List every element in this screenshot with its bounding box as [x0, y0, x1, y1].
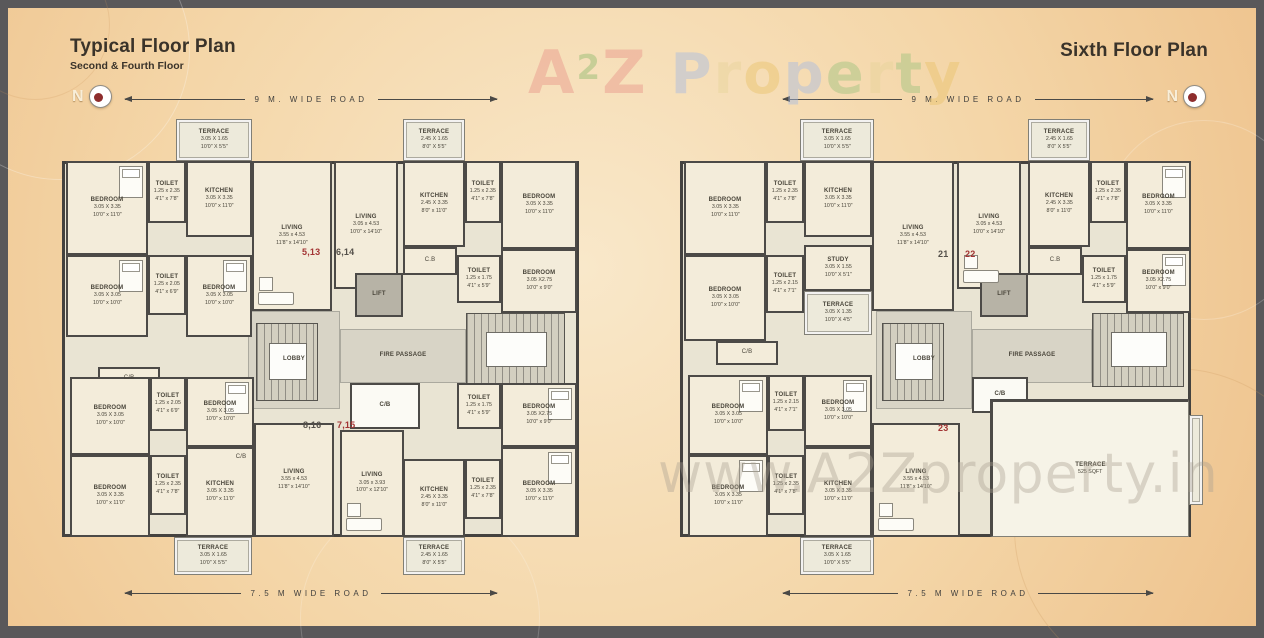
room-study: STUDY3.05 X 1.5510'0" X 5'1"	[804, 245, 872, 291]
room-bedroom: BEDROOM3.05 X 3.3510'0" x 11'0"	[688, 455, 768, 537]
unit-number: 8,16	[303, 421, 321, 430]
room-toilet: TOILET1.25 x 2.054'1" x 6'9"	[148, 255, 186, 315]
room-bedroom: BEDROOM3.05 X 3.3510'0" x 11'0"	[1126, 161, 1191, 249]
room-fire-passage: FIRE PASSAGE	[972, 329, 1092, 383]
left-plan-subtitle: Second & Fourth Floor	[70, 60, 236, 72]
room-kitchen: KITCHEN3.05 X 3.3510'0" x 11'0"	[186, 161, 252, 237]
watermark-letter: A	[528, 38, 576, 108]
road-text: 7.5 M WIDE ROAD	[898, 589, 1039, 598]
watermark-letter: P	[671, 42, 714, 107]
road-text: 9 M. WIDE ROAD	[902, 95, 1035, 104]
arrow-line-left	[125, 99, 245, 100]
unit-number: 7,15	[337, 421, 355, 430]
room-terrace: TERRACE3.05 X 1.6510'0" X 5'5"	[800, 537, 874, 575]
sofa-icon	[346, 518, 382, 531]
room-toilet: TOILET1.25 x 2.354'1" x 7'8"	[465, 161, 501, 223]
room-c-b: C/B	[350, 383, 420, 429]
room-terrace: TERRACE525 SQFT	[990, 399, 1189, 537]
right-plan-header: Sixth Floor Plan	[1060, 40, 1208, 62]
road-text: 9 M. WIDE ROAD	[245, 95, 378, 104]
room-bedroom: BEDROOM3.05 X 3.0510'0" x 10'0"	[186, 377, 254, 447]
room-bedroom: BEDROOM3.05 X2.7510'0" x 9'0"	[501, 383, 577, 447]
room-bedroom: BEDROOM3.05 X 3.0510'0" x 10'0"	[688, 375, 768, 455]
arrow-line-left	[783, 99, 902, 100]
room-toilet: TOILET1.25 x 2.154'1" x 7'1"	[766, 255, 804, 313]
floor-plan-sheet: A2Z Property www.A2Zproperty.in Typical …	[0, 0, 1264, 638]
room-living: LIVING3.05 x 4.5310'0" x 14'10"	[957, 161, 1021, 289]
room-terrace	[1189, 415, 1203, 505]
room-lift: LIFT	[355, 273, 403, 317]
road-label-bottom-left: 7.5 M WIDE ROAD	[125, 589, 497, 598]
room-terrace: TERRACE2.45 X 1.658'0" X 5'5"	[1028, 119, 1090, 161]
room-living: LIVING3.05 x 3.9310'0" x 12'10"	[340, 430, 404, 537]
room-toilet: TOILET1.25 x 2.354'1" x 7'8"	[768, 455, 804, 515]
unit-number: 5,13	[302, 248, 320, 257]
watermark-letter: o	[743, 42, 783, 107]
room-fire-passage: FIRE PASSAGE	[340, 329, 466, 383]
room-living: LIVING3.55 x 4.5311'8" x 14'10"	[872, 161, 954, 311]
room-toilet: TOILET1.25 x 1.754'1" x 5'9"	[1082, 255, 1126, 303]
unit-number: 22	[965, 250, 975, 259]
room-bedroom: BEDROOM3.05 X 3.0510'0" x 10'0"	[66, 255, 148, 337]
room-toilet: TOILET1.25 x 2.354'1" x 7'8"	[465, 459, 501, 519]
sofa-icon	[878, 518, 914, 531]
room-toilet: TOILET1.25 x 1.754'1" x 5'9"	[457, 383, 501, 429]
room-c-b: C/B	[716, 341, 778, 365]
unit-number: 6,14	[336, 248, 354, 257]
arrow-line-right	[381, 593, 497, 594]
room-kitchen: KITCHEN2.45 X 3.358'0" x 11'0"	[403, 459, 465, 537]
room-living: LIVING3.55 x 4.5311'8" x 14'10"	[254, 423, 334, 537]
room-toilet: TOILET1.25 x 2.354'1" x 7'8"	[1090, 161, 1126, 223]
room-living: LIVING3.05 x 4.5310'0" x 14'10"	[334, 161, 398, 289]
room-bedroom: BEDROOM3.05 X 3.0510'0" x 10'0"	[684, 255, 766, 341]
room-bedroom: BEDROOM3.05 X 3.0510'0" x 10'0"	[70, 377, 150, 455]
arrow-line-right	[1035, 99, 1154, 100]
room-living: LIVING3.55 x 4.5311'8" x 14'10"	[252, 161, 332, 311]
room-kitchen: KITCHEN3.05 X 3.3510'0" x 11'0"	[804, 161, 872, 237]
road-label-top-left: 9 M. WIDE ROAD	[125, 95, 497, 104]
room-toilet: TOILET1.25 x 2.054'1" x 6'9"	[150, 377, 186, 431]
road-label-bottom-right: 7.5 M WIDE ROAD	[783, 589, 1153, 598]
room-bedroom: BEDROOM3.05 X2.7510'0" x 9'0"	[1126, 249, 1191, 313]
arrow-line-right	[1038, 593, 1153, 594]
unit-number: 23	[938, 424, 948, 433]
bed-icon	[119, 166, 143, 198]
room-living: LIVING3.55 x 4.5311'8" x 14'10"	[872, 423, 960, 537]
watermark-letter	[648, 38, 671, 108]
north-letter: N	[1166, 88, 1178, 106]
room-terrace: TERRACE3.05 X 1.6510'0" X 5'5"	[800, 119, 874, 161]
arrow-line-left	[125, 593, 241, 594]
sixth-floor-plan: LOBBYFIRE PASSAGEC/BTERRACE3.05 X 1.6510…	[680, 115, 1195, 577]
room-terrace: TERRACE3.05 X 1.6510'0" X 5'5"	[174, 537, 252, 575]
arrow-line-right	[378, 99, 498, 100]
north-indicator-left: N	[72, 85, 112, 108]
sofa-icon	[258, 292, 294, 305]
room-terrace: TERRACE2.45 X 1.658'0" X 5'5"	[403, 537, 465, 575]
road-text: 7.5 M WIDE ROAD	[241, 589, 382, 598]
room-kitchen: KITCHEN2.45 X 3.358'0" x 11'0"	[1028, 161, 1090, 247]
compass-icon	[89, 85, 112, 108]
left-plan-header: Typical Floor Plan Second & Fourth Floor	[70, 36, 236, 72]
room-toilet: TOILET1.25 x 2.354'1" x 7'8"	[766, 161, 804, 223]
room-toilet: TOILET1.25 x 2.354'1" x 7'8"	[148, 161, 186, 223]
room-toilet: TOILET1.25 x 1.754'1" x 5'9"	[457, 255, 501, 303]
room-stair	[466, 313, 565, 387]
watermark-letter: Z	[602, 38, 648, 108]
typical-floor-plan: LOBBYFIRE PASSAGEC/BTERRACE3.05 X 1.6510…	[62, 115, 585, 577]
room-terrace: TERRACE3.05 X 1.3510'0" X 4'5"	[804, 291, 872, 335]
road-label-top-right: 9 M. WIDE ROAD	[783, 95, 1153, 104]
north-letter: N	[72, 88, 84, 106]
room-bedroom: BEDROOM3.05 X 3.3510'0" x 11'0"	[501, 161, 577, 249]
room-bedroom: BEDROOM3.05 X 3.3510'0" x 11'0"	[501, 447, 577, 537]
unit-number: 21	[938, 250, 948, 259]
room-bedroom: BEDROOM3.05 X 3.3510'0" x 11'0"	[70, 455, 150, 537]
room-c-b: C.B	[403, 247, 457, 275]
right-plan-title: Sixth Floor Plan	[1060, 40, 1208, 62]
room-terrace: TERRACE2.45 X 1.658'0" X 5'5"	[403, 119, 465, 161]
room-toilet: TOILET1.25 x 2.354'1" x 7'8"	[150, 455, 186, 515]
compass-icon	[1183, 85, 1206, 108]
arrow-line-left	[783, 593, 898, 594]
watermark-letter: r	[714, 42, 744, 107]
north-indicator-right: N	[1166, 85, 1206, 108]
room-bedroom: BEDROOM3.05 X 3.0510'0" x 10'0"	[186, 255, 252, 337]
room-stair	[1092, 313, 1184, 387]
room-toilet: TOILET1.25 x 2.154'1" x 7'1"	[768, 375, 804, 431]
watermark-letter: 2	[576, 48, 602, 88]
sofa-icon	[963, 270, 999, 283]
room-c-b: C.B	[1028, 247, 1082, 275]
left-plan-title: Typical Floor Plan	[70, 36, 236, 58]
bed-icon	[548, 452, 572, 484]
room-bedroom: BEDROOM3.05 X 3.0510'0" x 10'0"	[804, 375, 872, 447]
room-kitchen: KITCHEN3.05 X 3.3510'0" x 11'0"	[804, 447, 872, 537]
room-bedroom: BEDROOM3.05 X2.7510'0" x 9'0"	[501, 249, 577, 313]
room-terrace: TERRACE3.05 X 1.6510'0" X 5'5"	[176, 119, 252, 161]
room-bedroom: BEDROOM3.05 X 3.3510'0" x 11'0"	[684, 161, 766, 255]
room-bedroom: BEDROOM3.05 X 3.3510'0" x 11'0"	[66, 161, 148, 255]
room-kitchen: KITCHEN2.45 X 3.358'0" x 11'0"	[403, 161, 465, 247]
